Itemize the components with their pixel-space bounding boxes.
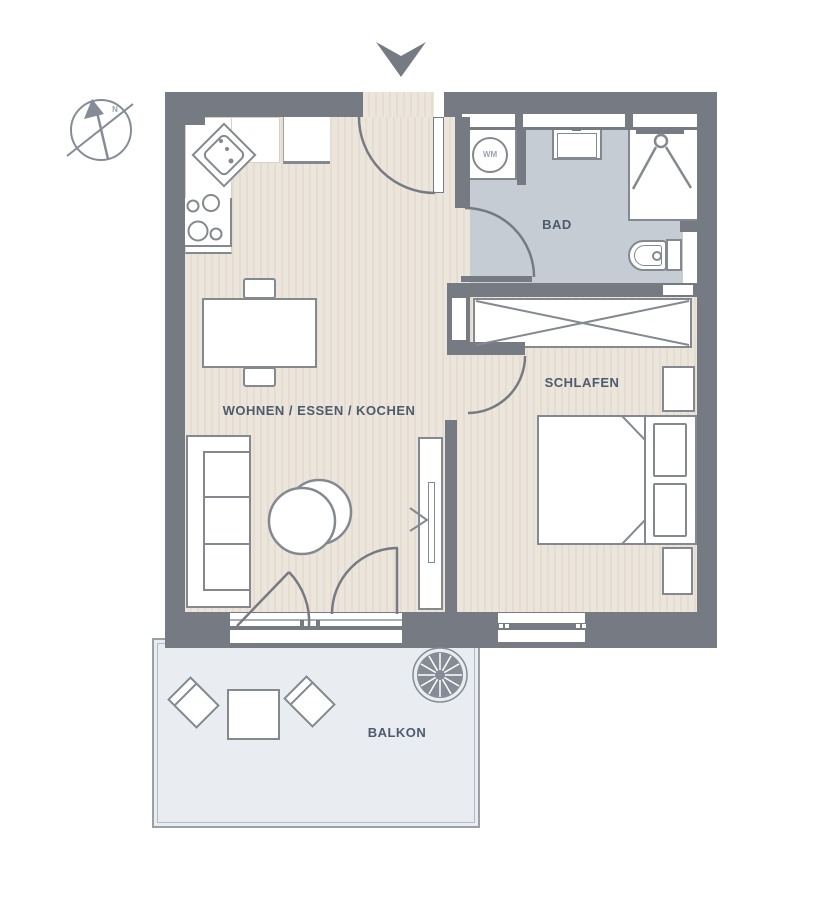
duvet-fold-top xyxy=(622,416,645,440)
entrance-arrow-icon xyxy=(376,42,426,77)
room-label-living: WOHNEN / ESSEN / KOCHEN xyxy=(208,403,430,418)
balcony-door-right-arc xyxy=(332,548,398,614)
potted-plant-icon xyxy=(413,648,467,702)
balcony-door-left-arc xyxy=(289,572,309,627)
sink-drain xyxy=(219,139,234,164)
washing-machine-label: WM xyxy=(476,150,504,159)
coffee-table xyxy=(269,488,335,554)
room-label-balcony: BALKON xyxy=(352,725,442,740)
entrance-door-arc xyxy=(359,117,435,193)
room-label-bedroom: SCHLAFEN xyxy=(532,375,632,390)
bath-door-arc xyxy=(465,208,534,277)
room-label-bath: BAD xyxy=(527,217,587,232)
shower-head xyxy=(633,133,691,189)
toilet-flush xyxy=(653,252,661,260)
bedroom-door-arc xyxy=(468,356,525,413)
floor-plan: WOHNEN / ESSEN / KOCHEN BAD SCHLAFEN BAL… xyxy=(0,0,823,900)
compass-north-label: N xyxy=(108,105,122,114)
duvet-fold-bottom xyxy=(622,520,645,544)
balcony-door-left-leaf xyxy=(237,572,289,626)
radiator-arrow-icon xyxy=(410,508,427,531)
plan-linework xyxy=(0,0,823,900)
cooktop-burners xyxy=(188,195,222,241)
north-compass-icon xyxy=(67,99,133,160)
